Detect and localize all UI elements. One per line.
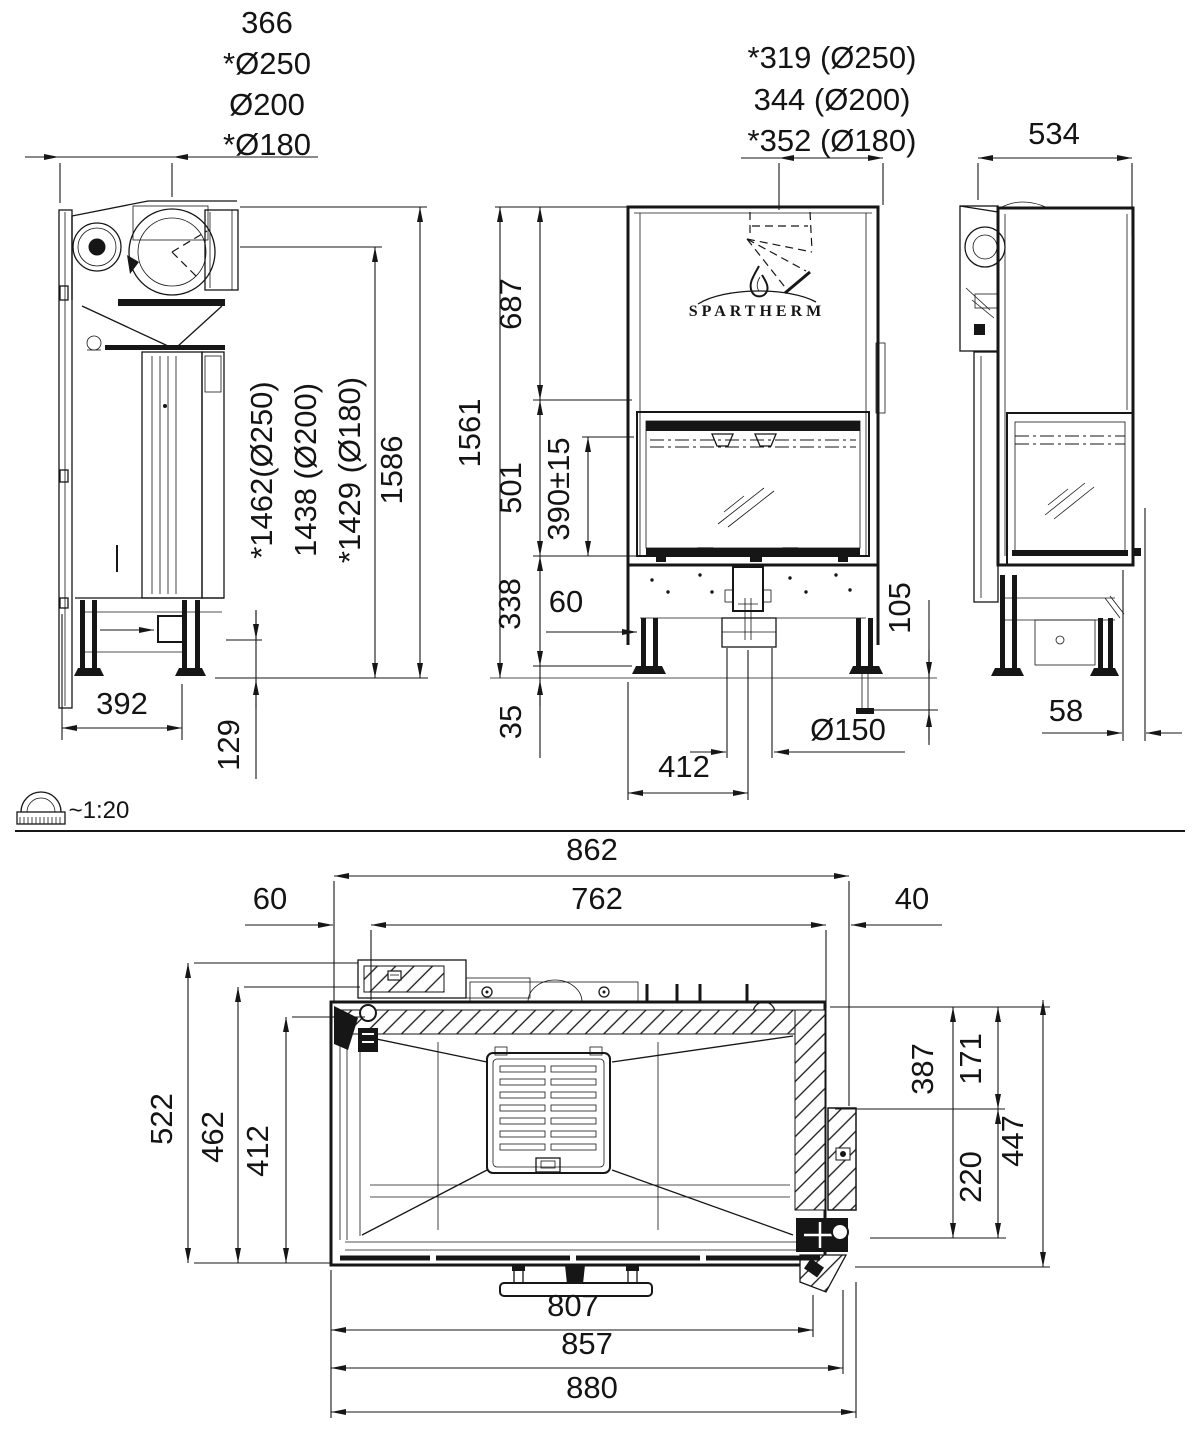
side-view-right [960, 202, 1141, 676]
dim-862: 862 [566, 832, 618, 867]
dim-height-left: 1586 *1462(Ø250) 1438 (Ø200) *1429 (Ø180… [215, 207, 428, 678]
protractor-icon [17, 792, 65, 824]
dim-344: 344 (Ø200) [754, 82, 911, 117]
dim-top-widths: 862 762 60 40 [245, 832, 942, 1106]
dim-d200: Ø200 [229, 87, 305, 122]
front-glass-door [637, 412, 869, 562]
dim-762: 762 [571, 881, 623, 916]
front-base [628, 565, 883, 714]
dim-319: *319 (Ø250) [748, 40, 917, 75]
dim-depth-534: 534 [978, 116, 1132, 235]
dim-1438: 1438 (Ø200) [288, 383, 323, 557]
dim-60: 60 [549, 584, 583, 619]
dim-40-right: 40 [895, 881, 929, 916]
scale-note: ~1:20 [17, 792, 129, 824]
dim-857: 857 [561, 1326, 613, 1361]
dim-129: 129 [211, 719, 246, 771]
dim-534: 534 [1028, 116, 1080, 151]
dim-d180: *Ø180 [223, 127, 311, 162]
dim-352: *352 (Ø180) [748, 123, 917, 158]
dim-880: 880 [566, 1370, 618, 1405]
dim-1429: *1429 (Ø180) [332, 377, 367, 563]
dim-top-bottom-widths: 807 857 880 [331, 1270, 856, 1418]
brand-logo-text: SPARTHERM [689, 303, 825, 320]
dim-105: 105 [882, 582, 917, 634]
dim-1561: 1561 [452, 399, 487, 468]
side-right-base [991, 575, 1124, 676]
dim-58: 58 [1049, 693, 1083, 728]
side-view-left [59, 201, 238, 708]
dim-687: 687 [493, 278, 528, 330]
dim-leg-offset-60: 60 [546, 584, 637, 632]
scale-label: ~1:20 [69, 797, 130, 824]
dim-flue-offset-front: *319 (Ø250) 344 (Ø200) *352 (Ø180) [741, 40, 916, 210]
fireplace-dimension-drawing: 366 *Ø250 Ø200 *Ø180 1586 *1462(Ø250) 14… [0, 0, 1196, 1434]
dim-522: 522 [144, 1093, 179, 1145]
flame-inner-icon [757, 277, 760, 291]
dim-807: 807 [547, 1288, 599, 1323]
dim-base-129: 129 [211, 610, 262, 779]
dim-412-top: 412 [240, 1125, 275, 1177]
air-grille [487, 1047, 610, 1173]
dim-387: 387 [905, 1043, 940, 1095]
dim-392: 392 [96, 686, 148, 721]
dim-501: 501 [493, 462, 528, 514]
dim-1462: *1462(Ø250) [244, 381, 279, 559]
dim-462: 462 [195, 1111, 230, 1163]
dim-heights-front: 1561 687 501 390±15 338 35 [452, 207, 637, 758]
dim-390: 390±15 [541, 437, 576, 540]
dim-366: 366 [241, 5, 293, 40]
dim-flue-offset-left: 366 *Ø250 Ø200 *Ø180 [25, 5, 318, 203]
top-view [331, 960, 856, 1296]
dim-447: 447 [995, 1115, 1030, 1167]
spartherm-logo: SPARTHERM [689, 266, 825, 320]
flame-icon [751, 266, 768, 296]
dim-150: Ø150 [810, 712, 886, 747]
damper-flap-dashed [747, 212, 812, 293]
technical-drawing-page: 366 *Ø250 Ø200 *Ø180 1586 *1462(Ø250) 14… [0, 0, 1196, 1434]
dim-35: 35 [493, 705, 528, 739]
hinge-bottom-right [796, 1218, 848, 1292]
side-glass-door [1007, 413, 1141, 565]
dim-top-depths-right: 387 171 220 447 [830, 1000, 1050, 1267]
dim-220: 220 [953, 1151, 988, 1203]
dim-412: 412 [658, 749, 710, 784]
dim-1586: 1586 [374, 436, 409, 505]
dim-60-left: 60 [253, 881, 287, 916]
dim-338: 338 [492, 578, 527, 630]
dim-171: 171 [953, 1033, 988, 1085]
dim-d250: *Ø250 [223, 46, 311, 81]
